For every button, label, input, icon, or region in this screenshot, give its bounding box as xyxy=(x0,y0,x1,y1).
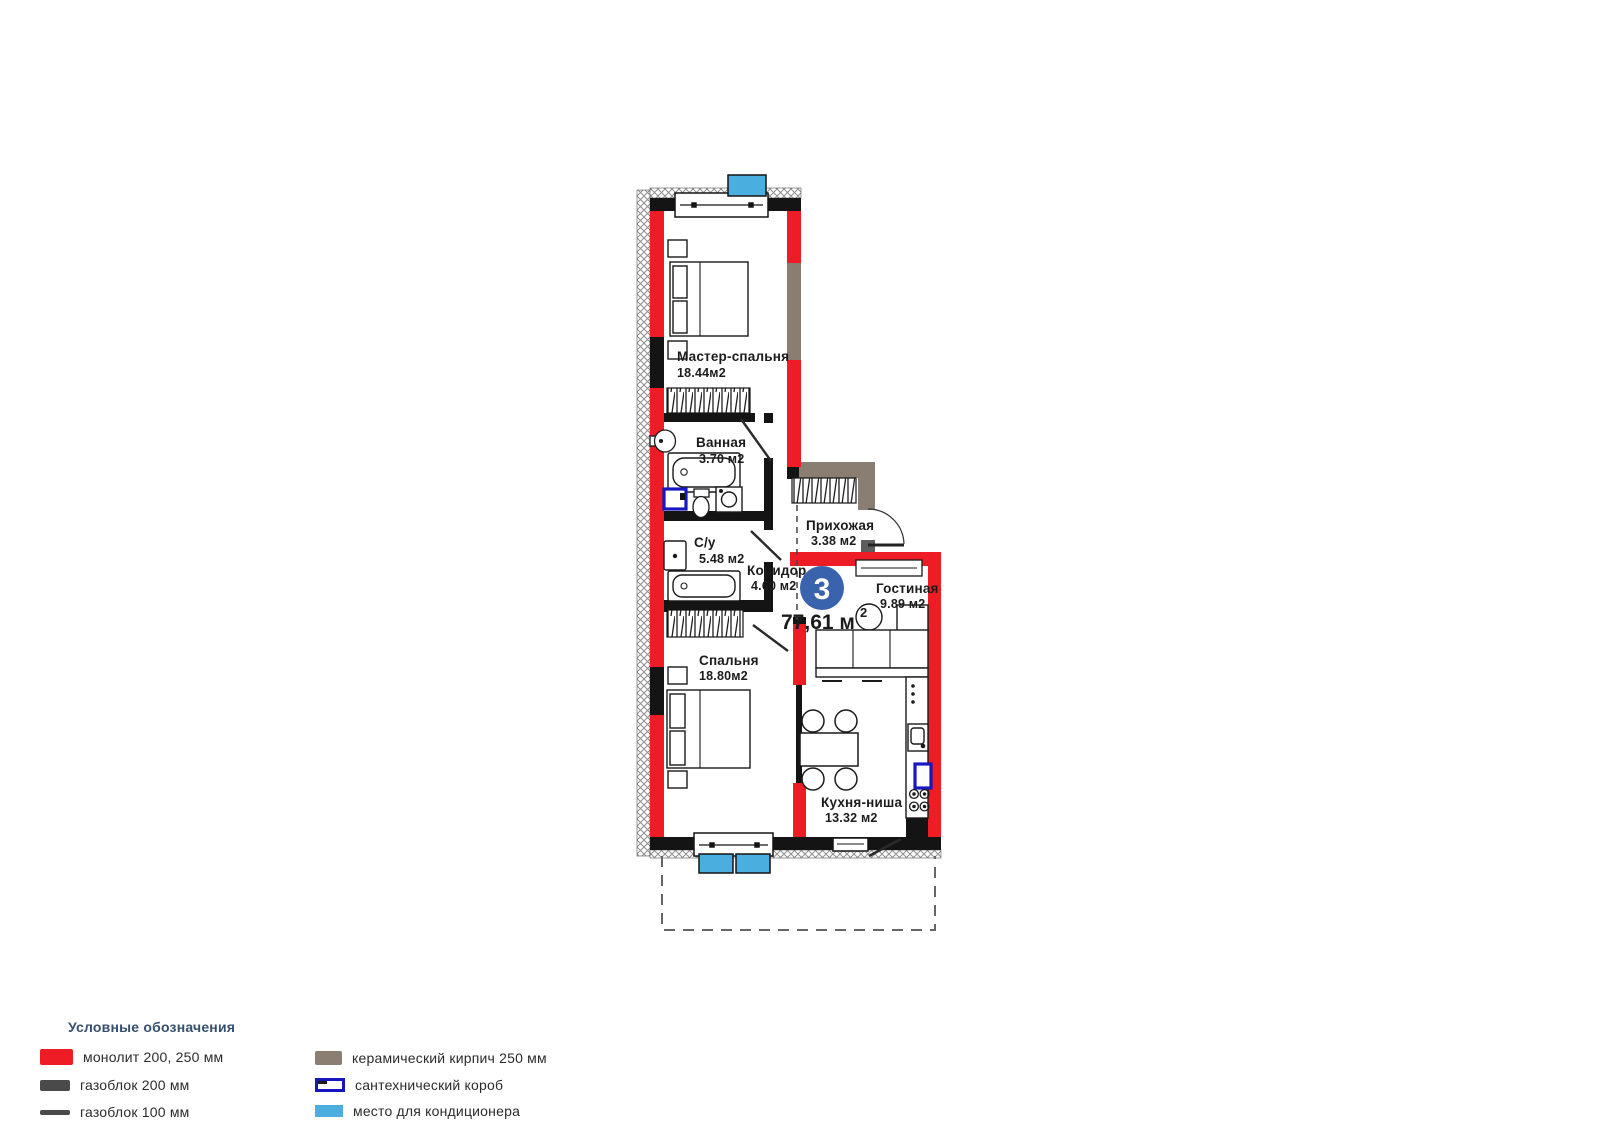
legend-swatch-ac-icon xyxy=(315,1105,343,1117)
apartment-number-badge: 3 xyxy=(800,566,844,610)
window-icon xyxy=(694,833,773,856)
room-label-master-bedroom: Мастер-спальня 18.44м2 xyxy=(677,349,789,380)
legend-swatch-ceramic-icon xyxy=(315,1051,342,1065)
legend-item-monolith: монолит 200, 250 мм xyxy=(40,1049,223,1065)
svg-text:Ванная: Ванная xyxy=(696,435,746,450)
svg-text:5.48 м2: 5.48 м2 xyxy=(699,552,744,566)
sink-icon xyxy=(664,541,686,570)
chair-icon xyxy=(802,710,824,732)
room-label-kitchen-niche: Кухня-ниша 13.32 м2 xyxy=(821,795,902,825)
washing-machine-icon xyxy=(716,487,742,512)
svg-text:Кухня-ниша: Кухня-ниша xyxy=(821,795,902,810)
fridge-icon xyxy=(911,684,915,704)
svg-text:Коридор: Коридор xyxy=(747,563,807,578)
legend-item-ceramic-brick: керамический кирпич 250 мм xyxy=(315,1050,547,1066)
bathtub-icon xyxy=(668,571,740,601)
chair-icon xyxy=(802,768,824,790)
svg-text:Спальня: Спальня xyxy=(699,653,759,668)
svg-text:77,61 м: 77,61 м xyxy=(781,611,855,634)
floor-plan: Мастер-спальня 18.44м2 Ванная 3.70 м2 С/… xyxy=(0,0,1600,1131)
legend-item-plumbing-box: сантехнический короб xyxy=(315,1077,503,1093)
svg-text:3.70 м2: 3.70 м2 xyxy=(699,452,744,466)
tv-stand-icon xyxy=(856,560,922,576)
toilet-icon xyxy=(693,489,709,518)
svg-text:18.44м2: 18.44м2 xyxy=(677,366,726,380)
legend-swatch-gasblock-100-icon xyxy=(40,1110,70,1115)
svg-text:2: 2 xyxy=(860,605,867,620)
bed-icon xyxy=(668,240,748,359)
legend-item-ac-place: место для кондиционера xyxy=(315,1103,520,1119)
legend-item-gasblock-100: газоблок 100 мм xyxy=(40,1104,190,1120)
svg-text:Гостиная: Гостиная xyxy=(876,581,939,596)
room-label-corridor: Коридор 4.60 м2 xyxy=(747,563,807,593)
legend-swatch-plumbing-icon xyxy=(315,1078,345,1092)
plumbing-box-icon xyxy=(915,764,931,788)
room-label-bedroom: Спальня 18.80м2 xyxy=(699,653,759,683)
plumbing-box-icon xyxy=(664,489,686,509)
legend-swatch-gasblock-200-icon xyxy=(40,1080,70,1091)
chair-icon xyxy=(835,768,857,790)
dining-table-icon xyxy=(800,710,858,790)
kitchen-sink-icon xyxy=(908,724,928,751)
svg-text:Мастер-спальня: Мастер-спальня xyxy=(677,349,789,364)
floor-plan-page: Мастер-спальня 18.44м2 Ванная 3.70 м2 С/… xyxy=(0,0,1600,1131)
svg-text:Прихожая: Прихожая xyxy=(806,518,874,533)
svg-text:9.89 м2: 9.89 м2 xyxy=(880,597,925,611)
svg-text:С/у: С/у xyxy=(694,535,716,550)
room-label-wc: С/у 5.48 м2 xyxy=(694,535,744,566)
legend-item-gasblock-200: газоблок 200 мм xyxy=(40,1077,190,1093)
legend-swatch-monolith-icon xyxy=(40,1049,73,1065)
legend-title: Условные обозначения xyxy=(68,1019,235,1035)
chair-icon xyxy=(835,710,857,732)
svg-text:13.32 м2: 13.32 м2 xyxy=(825,811,878,825)
svg-text:4.60 м2: 4.60 м2 xyxy=(751,579,796,593)
svg-text:18.80м2: 18.80м2 xyxy=(699,669,748,683)
room-label-bathroom: Ванная 3.70 м2 xyxy=(696,435,746,466)
bed-icon xyxy=(667,667,750,788)
svg-text:3.38 м2: 3.38 м2 xyxy=(811,534,856,548)
svg-text:3: 3 xyxy=(814,573,831,606)
